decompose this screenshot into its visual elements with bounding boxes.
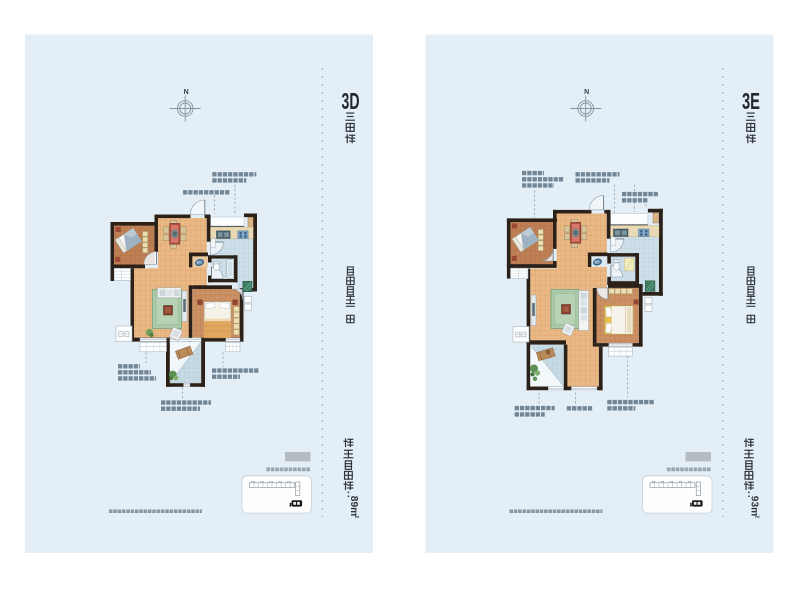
svg-text:N: N: [184, 89, 189, 96]
svg-text:3D: 3D: [342, 88, 360, 114]
svg-text:2: 2: [353, 515, 359, 518]
svg-text:3E: 3E: [742, 88, 760, 114]
svg-text:2: 2: [754, 515, 760, 518]
svg-text:93m: 93m: [749, 496, 760, 516]
svg-text:89m: 89m: [348, 496, 359, 516]
svg-text:N: N: [584, 89, 589, 96]
